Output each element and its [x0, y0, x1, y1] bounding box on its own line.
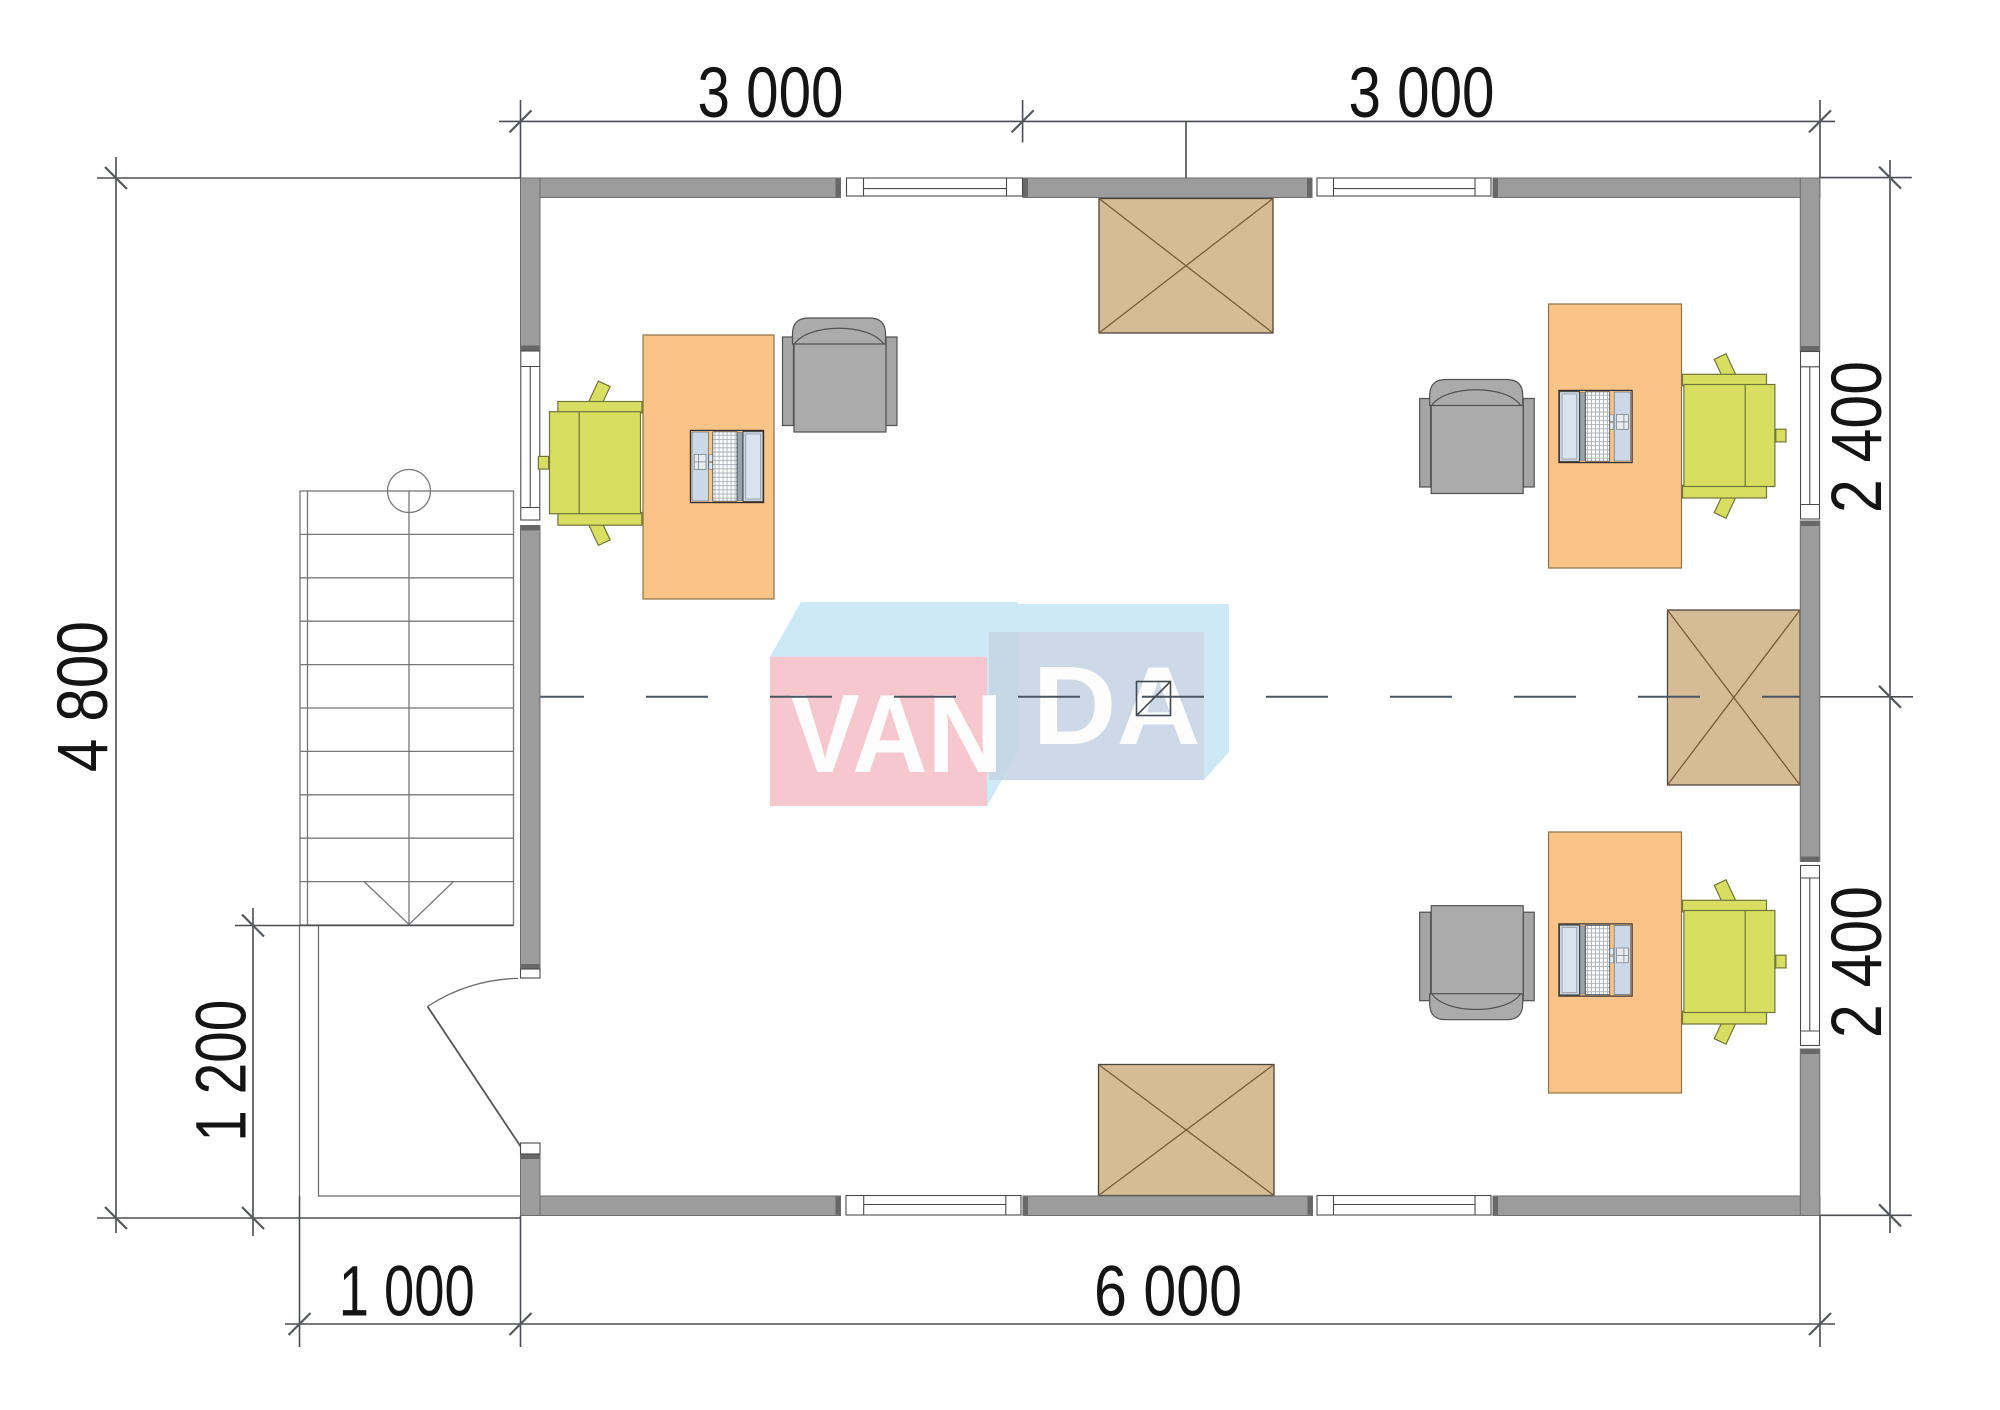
svg-text:1 200: 1 200 [183, 1000, 262, 1142]
svg-text:2 400: 2 400 [1818, 361, 1897, 513]
svg-text:DA: DA [1033, 644, 1201, 768]
svg-text:2 400: 2 400 [1818, 886, 1897, 1038]
svg-text:VAN: VAN [790, 672, 1003, 796]
svg-text:1 000: 1 000 [339, 1253, 475, 1332]
svg-text:3 000: 3 000 [698, 54, 844, 133]
svg-text:6 000: 6 000 [1094, 1253, 1242, 1332]
svg-text:3 000: 3 000 [1349, 54, 1495, 133]
svg-text:4 800: 4 800 [44, 621, 123, 772]
